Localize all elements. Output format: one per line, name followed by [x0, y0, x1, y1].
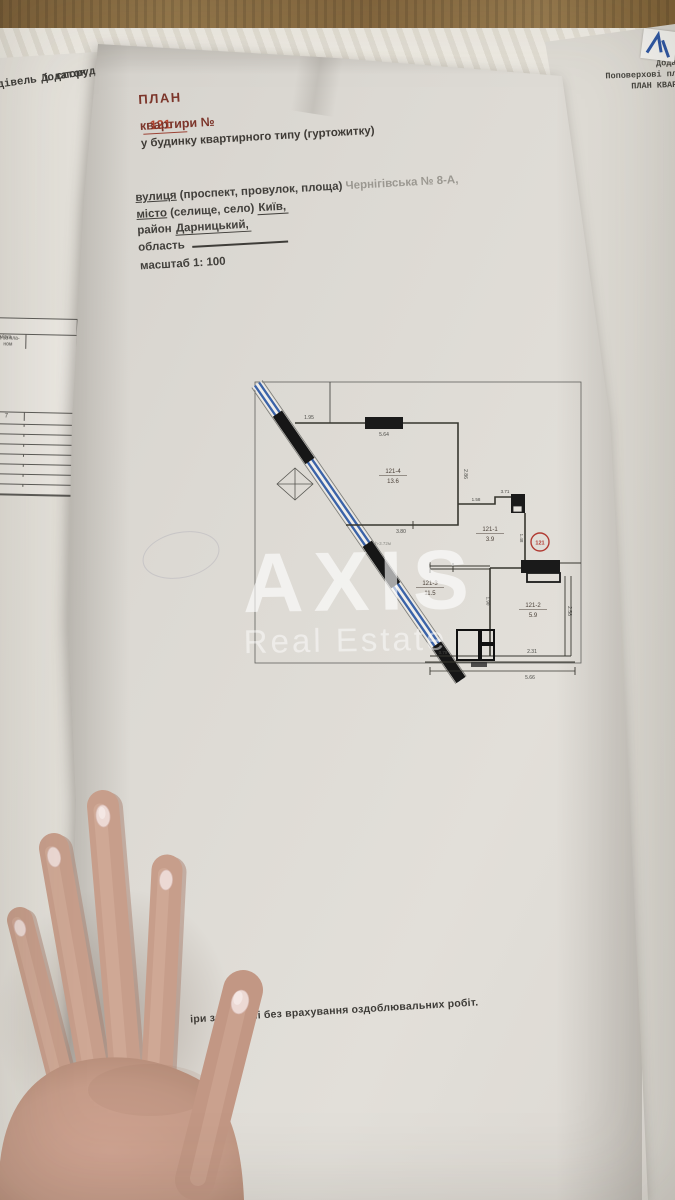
wall-black-segment — [367, 544, 396, 586]
svg-text:5.9: 5.9 — [529, 613, 538, 619]
window-sill — [527, 573, 560, 582]
height-note: h-3.72м — [375, 541, 391, 546]
room3-corridor-wall — [430, 566, 490, 569]
district-label: район — [137, 223, 172, 237]
shaft-diamond-icon — [277, 468, 313, 500]
street-label: вулиця — [135, 190, 177, 204]
vent-window-block — [521, 560, 560, 573]
room-label-121-3: 121-3 11.5 — [416, 581, 444, 597]
wc-fixtures — [457, 630, 494, 660]
document-header: ПЛАН квартири №121 у будинку квартирного… — [138, 73, 481, 150]
svg-text:121-1: 121-1 — [482, 527, 498, 533]
dim-1.48: 1.48 — [519, 534, 524, 543]
apartment-number-label: квартири № — [140, 115, 215, 133]
hand — [0, 760, 300, 1200]
apartment-badge: 121 — [531, 533, 549, 551]
room-label-121-1: 121-1 3.9 — [476, 527, 504, 543]
stamp-mark — [138, 524, 224, 585]
city-label: місто — [136, 207, 167, 221]
svg-text:13.6: 13.6 — [387, 479, 399, 485]
right-wall-double — [565, 576, 571, 656]
floorplan-drawing: 121-4 13.6 121-1 3.9 121-3 11.5 — [243, 366, 603, 696]
corridor-north-wall — [458, 497, 511, 504]
room-label-121-2: 121-2 5.9 — [519, 603, 547, 619]
threshold-hatch — [471, 662, 487, 667]
region-label: область — [138, 239, 185, 254]
dim-5.66: 5.66 — [525, 675, 535, 681]
address-block: вулиця (проспект, провулок, площа) Черні… — [135, 167, 558, 256]
dim-1.58: 1.58 — [472, 497, 481, 502]
region-blank-underline — [191, 233, 287, 247]
dim-2.58: 2.58 — [566, 606, 572, 616]
diagonal-wall-band — [252, 380, 466, 683]
dim-1.95: 1.95 — [304, 415, 314, 421]
scale-note: масштаб 1: 100 — [140, 256, 226, 273]
dim-0.79: 0.79 — [439, 650, 448, 655]
city-value: Київ, — [257, 200, 288, 215]
dim-2.86: 2.86 — [462, 469, 468, 479]
photo-canvas: Додаток дівель і споруд № за пла- ном Пр… — [0, 0, 675, 1200]
dim-3.71: 3.71 — [501, 489, 510, 494]
window-block-top — [365, 417, 403, 429]
dim-1.90: 1.90 — [486, 597, 491, 606]
fingers — [17, 806, 171, 1094]
svg-text:121: 121 — [535, 541, 544, 547]
room-label-121-4: 121-4 13.6 — [379, 469, 407, 485]
svg-text:121-3: 121-3 — [422, 581, 438, 587]
shaft-inner — [513, 506, 522, 512]
svg-text:121-4: 121-4 — [385, 469, 401, 475]
svg-text:3.9: 3.9 — [486, 537, 495, 543]
dim-2.31: 2.31 — [527, 649, 537, 655]
dim-3.80: 3.80 — [396, 529, 406, 535]
svg-text:121-2: 121-2 — [525, 603, 541, 609]
svg-text:11.5: 11.5 — [424, 591, 436, 597]
dim-5.64: 5.64 — [379, 432, 389, 438]
